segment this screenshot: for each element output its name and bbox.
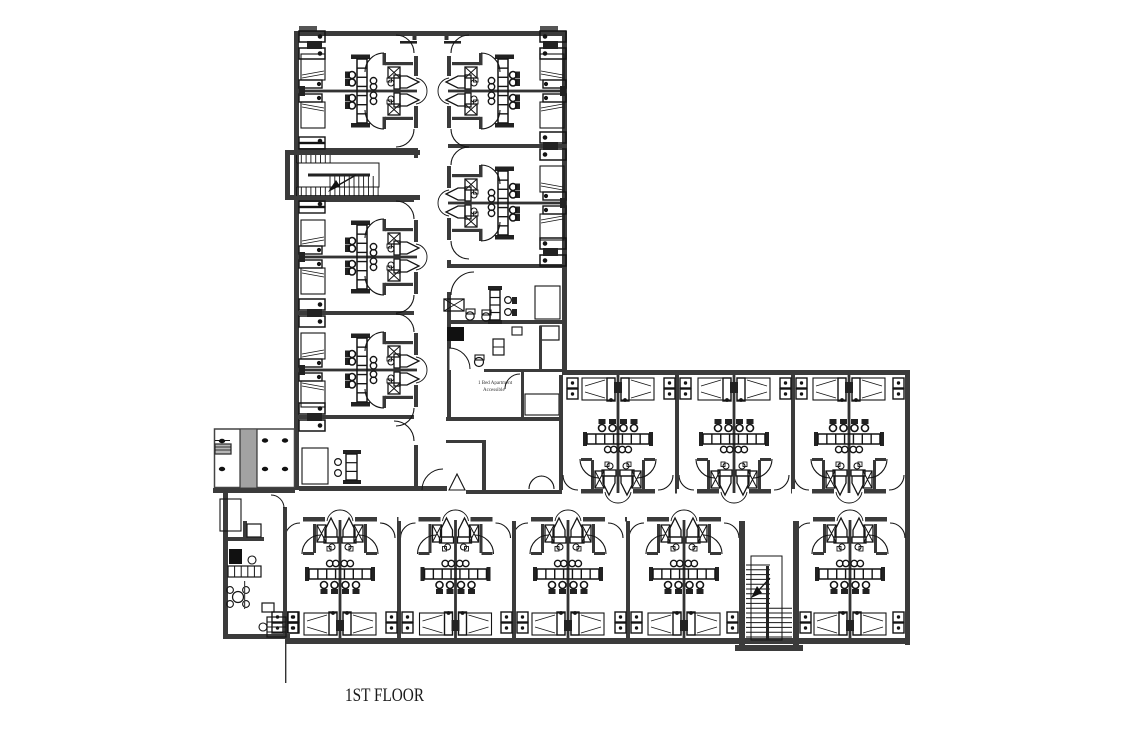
svg-text:1 Bed Apartment: 1 Bed Apartment (478, 381, 513, 386)
svg-text:1ST FLOOR: 1ST FLOOR (345, 685, 424, 706)
svg-text:Accessible: Accessible (483, 388, 505, 393)
